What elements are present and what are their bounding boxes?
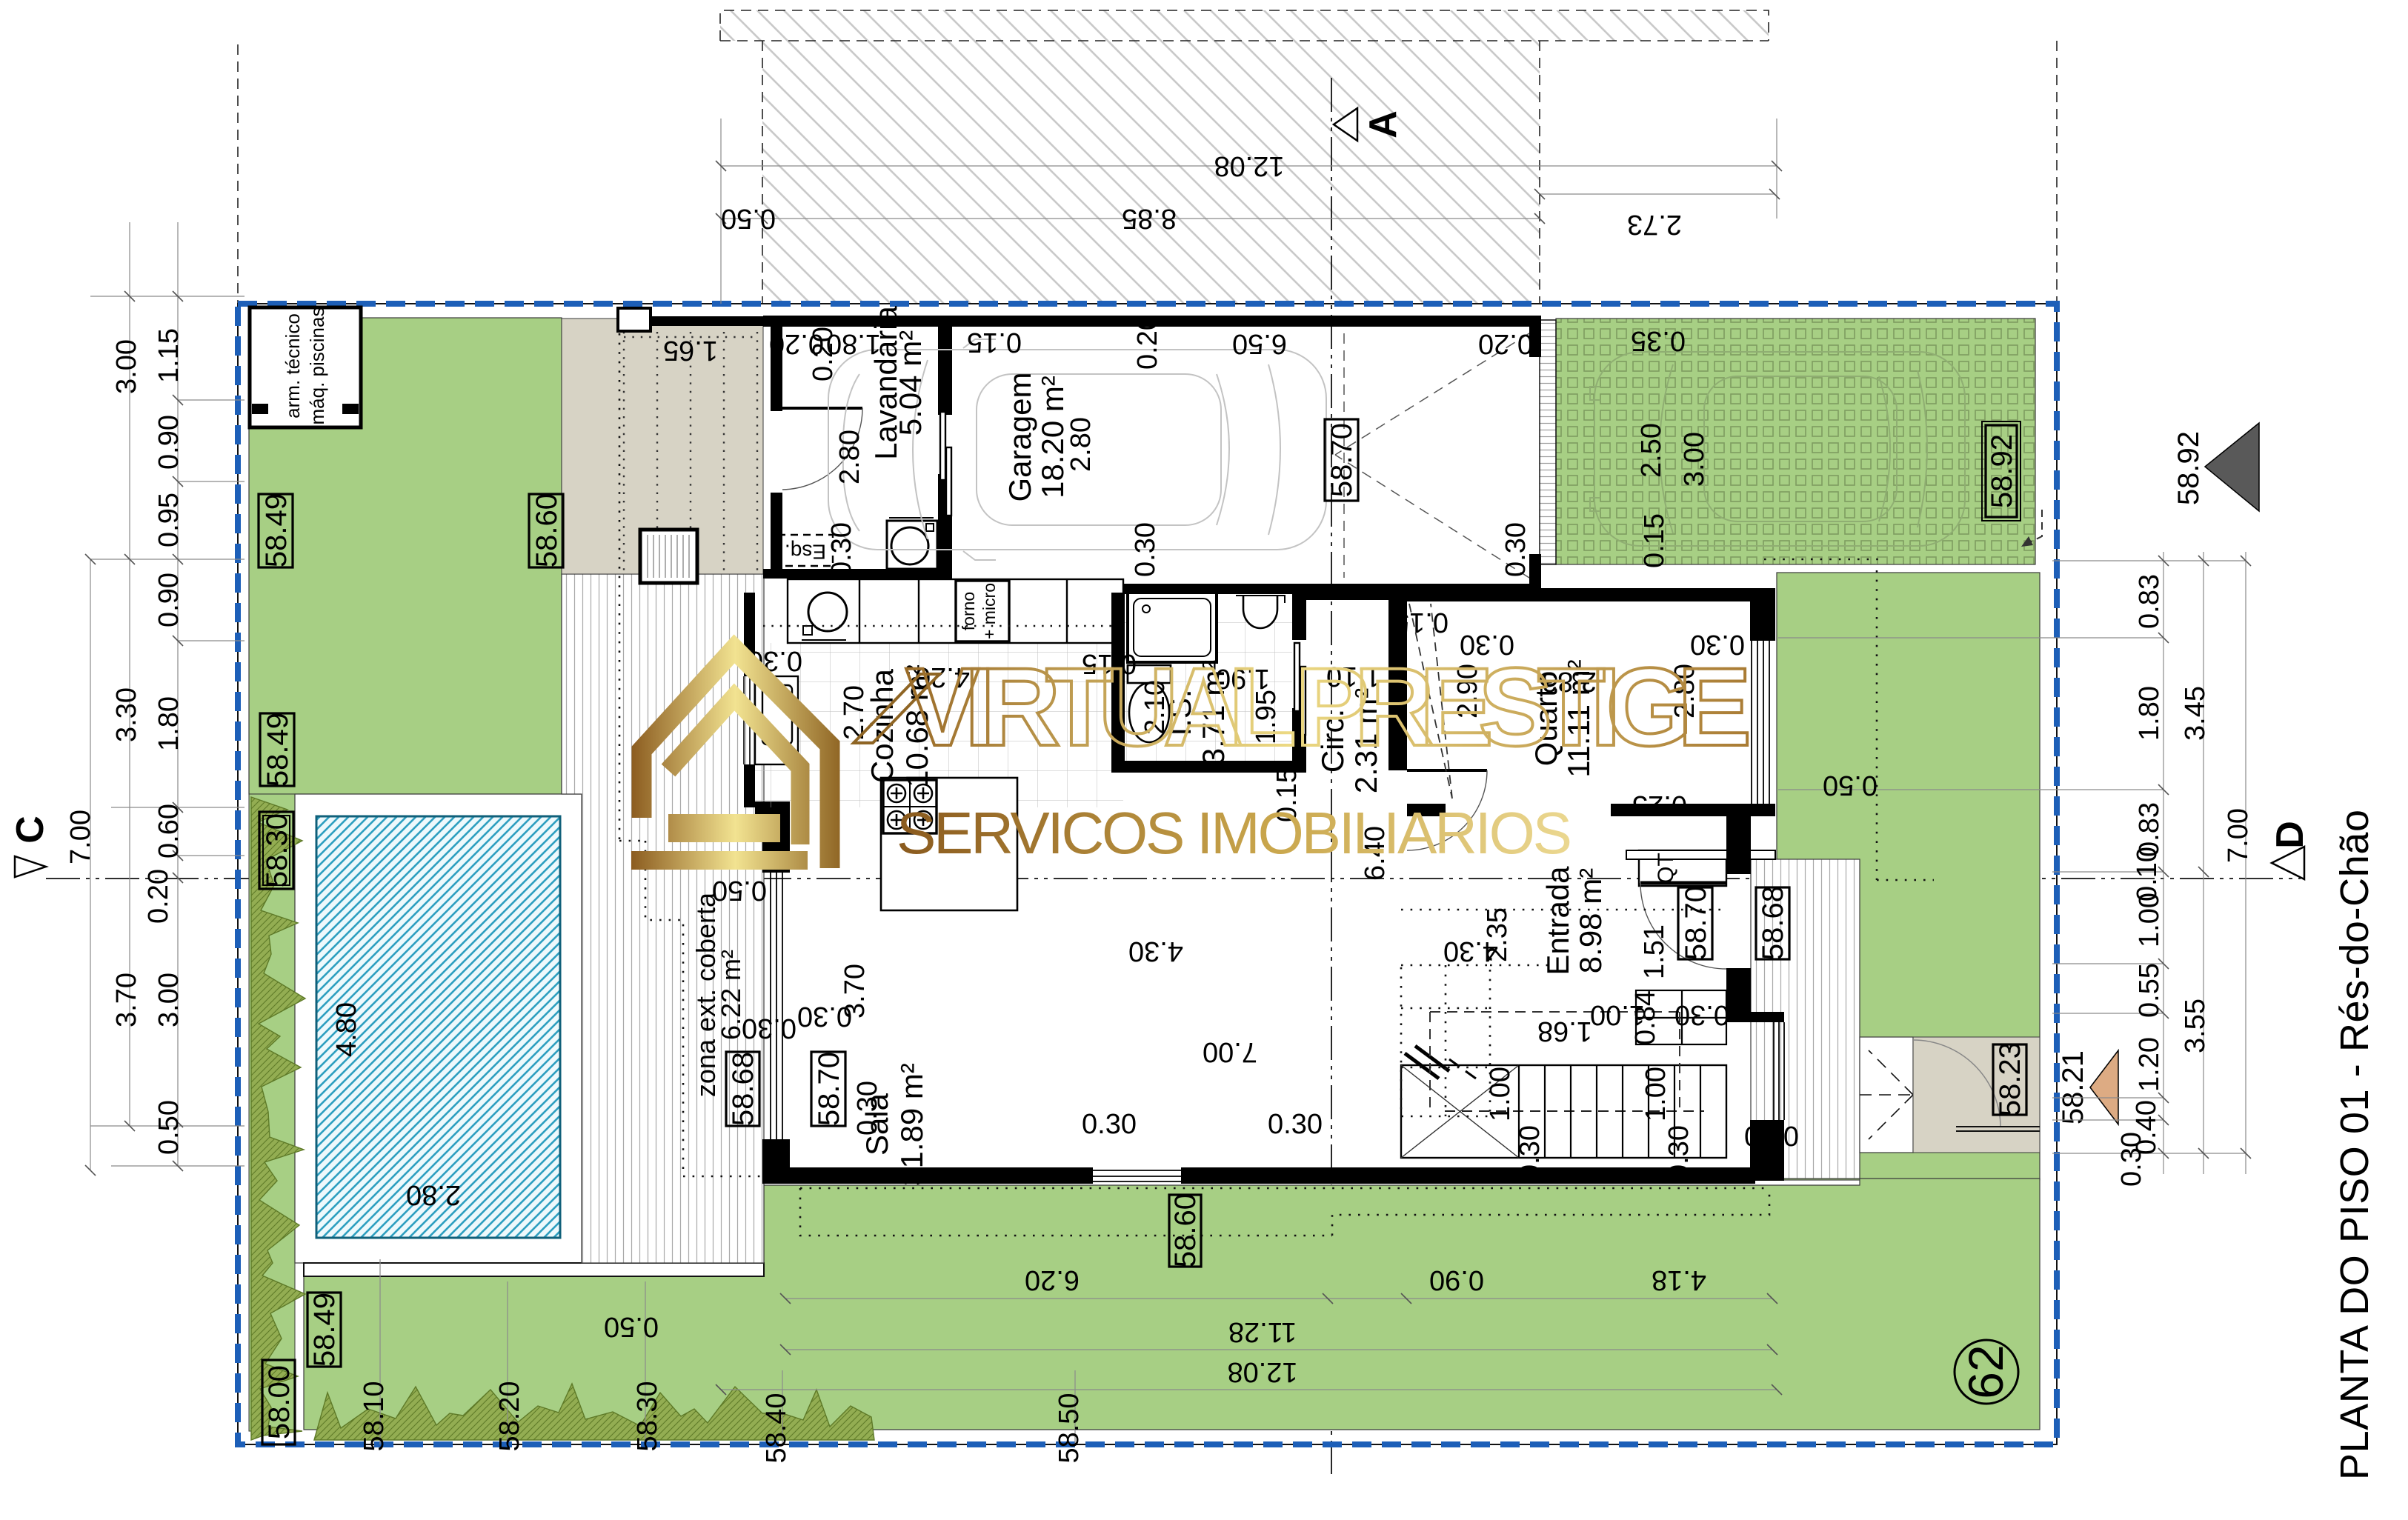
- svg-text:58.49: 58.49: [308, 1293, 341, 1367]
- svg-text:Esq.: Esq.: [785, 541, 826, 564]
- svg-text:1.00: 1.00: [1485, 1067, 1516, 1121]
- svg-text:0.20: 0.20: [808, 327, 839, 381]
- svg-text:0.90: 0.90: [153, 415, 184, 470]
- svg-text:0.20: 0.20: [1478, 328, 1533, 359]
- svg-text:58.68: 58.68: [1757, 886, 1789, 960]
- svg-text:3.45: 3.45: [2180, 686, 2211, 741]
- svg-text:Garagem: Garagem: [1002, 372, 1037, 501]
- svg-text:máq. piscinas: máq. piscinas: [306, 307, 328, 425]
- svg-text:+ micro: + micro: [980, 583, 999, 639]
- svg-text:2.80: 2.80: [834, 430, 865, 484]
- svg-text:3.00: 3.00: [111, 339, 142, 394]
- svg-text:3.55: 3.55: [2180, 999, 2211, 1053]
- svg-text:8.85: 8.85: [1122, 203, 1177, 234]
- svg-text:0.30: 0.30: [2116, 1132, 2147, 1187]
- svg-text:0.30: 0.30: [1514, 1125, 1546, 1180]
- svg-text:6.50: 6.50: [1232, 328, 1287, 359]
- svg-text:0.15: 0.15: [967, 327, 1022, 358]
- svg-text:58.00: 58.00: [263, 1365, 296, 1439]
- svg-text:0.30: 0.30: [1130, 522, 1161, 577]
- svg-text:6.22 m²: 6.22 m²: [716, 950, 746, 1040]
- svg-text:0.30: 0.30: [1268, 1109, 1323, 1140]
- svg-text:3.00: 3.00: [153, 973, 184, 1027]
- svg-text:1.80: 1.80: [2134, 686, 2165, 741]
- svg-text:58.60: 58.60: [1169, 1193, 1202, 1267]
- svg-text:18.20 m²: 18.20 m²: [1035, 376, 1070, 499]
- svg-text:0.25: 0.25: [1632, 790, 1687, 821]
- svg-text:4.18: 4.18: [1652, 1264, 1706, 1296]
- svg-text:1.65: 1.65: [663, 335, 718, 366]
- svg-text:58.30: 58.30: [632, 1381, 663, 1451]
- svg-text:0.20: 0.20: [143, 869, 174, 924]
- svg-text:4.80: 4.80: [331, 1002, 362, 1057]
- svg-text:1.15: 1.15: [153, 328, 184, 383]
- svg-text:0.30: 0.30: [1674, 999, 1729, 1030]
- svg-text:0.50: 0.50: [1823, 770, 1877, 801]
- svg-text:0.40: 0.40: [1744, 1120, 1799, 1151]
- svg-text:0.50: 0.50: [153, 1100, 184, 1155]
- svg-text:7.00: 7.00: [65, 810, 96, 864]
- svg-text:0.95: 0.95: [153, 493, 184, 547]
- svg-text:8.98 m²: 8.98 m²: [1573, 868, 1608, 973]
- svg-text:SERVICOS IMOBILIARIOS: SERVICOS IMOBILIARIOS: [897, 800, 1578, 866]
- svg-text:58.49: 58.49: [260, 493, 293, 567]
- svg-text:1.00: 1.00: [1590, 999, 1645, 1030]
- svg-text:58.92: 58.92: [1986, 434, 2018, 508]
- svg-text:1.51: 1.51: [1639, 924, 1670, 979]
- svg-text:7.00: 7.00: [2223, 808, 2254, 863]
- svg-text:58.60: 58.60: [531, 493, 563, 567]
- svg-text:2.73: 2.73: [1627, 209, 1682, 240]
- svg-text:QT: QT: [1654, 853, 1678, 884]
- svg-text:PLANTA DO PISO 01 - Rés-do-Chã: PLANTA DO PISO 01 - Rés-do-Chão: [2332, 810, 2377, 1480]
- svg-text:12.08: 12.08: [1214, 150, 1284, 181]
- svg-text:58.20: 58.20: [494, 1381, 525, 1451]
- svg-text:1.00: 1.00: [1640, 1067, 1672, 1121]
- svg-text:58.92: 58.92: [2172, 431, 2205, 505]
- svg-text:Entrada: Entrada: [1540, 866, 1575, 976]
- svg-text:1.68: 1.68: [1537, 1016, 1592, 1047]
- svg-text:3.30: 3.30: [111, 687, 142, 742]
- svg-text:31.89 m²: 31.89 m²: [894, 1063, 929, 1186]
- svg-text:0.15: 0.15: [1394, 607, 1449, 638]
- svg-text:0.50: 0.50: [604, 1311, 659, 1342]
- svg-text:0.20: 0.20: [1132, 315, 1163, 370]
- svg-text:4.30: 4.30: [1128, 936, 1183, 967]
- svg-text:1.20: 1.20: [2134, 1037, 2165, 1092]
- svg-text:12.08: 12.08: [1227, 1356, 1297, 1387]
- svg-text:58.21: 58.21: [2057, 1050, 2089, 1124]
- svg-text:0.50: 0.50: [712, 875, 767, 906]
- svg-text:58.10: 58.10: [359, 1381, 390, 1451]
- svg-text:D: D: [2269, 821, 2312, 849]
- svg-text:7.00: 7.00: [1203, 1036, 1257, 1067]
- svg-text:5.04 m²: 5.04 m²: [893, 330, 928, 436]
- svg-text:1.00: 1.00: [2134, 893, 2165, 947]
- svg-text:forno: forno: [959, 592, 978, 630]
- svg-text:A: A: [1362, 110, 1405, 139]
- svg-text:0.90: 0.90: [1429, 1264, 1484, 1296]
- svg-text:0.30: 0.30: [742, 1013, 796, 1044]
- svg-text:58.70: 58.70: [1680, 886, 1712, 960]
- svg-text:3.00: 3.00: [1679, 432, 1710, 487]
- svg-text:2.80: 2.80: [1065, 417, 1097, 472]
- svg-text:0.60: 0.60: [153, 804, 184, 859]
- svg-text:0.30: 0.30: [1082, 1109, 1137, 1140]
- svg-text:VIRTUAL PRESTIGE: VIRTUAL PRESTIGE: [905, 644, 1756, 769]
- svg-text:58.68: 58.68: [727, 1052, 759, 1126]
- svg-text:0.30: 0.30: [1663, 1125, 1694, 1180]
- svg-text:0.90: 0.90: [153, 573, 184, 627]
- svg-text:0.50: 0.50: [721, 203, 776, 234]
- svg-text:58.49: 58.49: [262, 713, 294, 787]
- svg-text:58.30: 58.30: [261, 813, 293, 887]
- svg-text:0.35: 0.35: [1631, 325, 1686, 356]
- svg-text:6.20: 6.20: [1025, 1264, 1080, 1296]
- svg-text:58.70: 58.70: [813, 1052, 845, 1126]
- svg-text:0.30: 0.30: [1500, 522, 1531, 577]
- svg-text:58.70: 58.70: [1326, 423, 1358, 497]
- svg-text:0.30: 0.30: [797, 1001, 852, 1032]
- svg-text:C: C: [9, 816, 52, 844]
- svg-text:4.30: 4.30: [1443, 936, 1498, 967]
- svg-text:0.30: 0.30: [826, 522, 857, 577]
- svg-text:58.23: 58.23: [1994, 1042, 2026, 1116]
- svg-text:2.50: 2.50: [1636, 423, 1667, 478]
- svg-text:0.30: 0.30: [852, 1081, 883, 1136]
- svg-text:58.50: 58.50: [1054, 1393, 1085, 1463]
- svg-text:1.80: 1.80: [153, 696, 184, 751]
- svg-text:11.28: 11.28: [1228, 1316, 1297, 1347]
- svg-text:2.80: 2.80: [406, 1179, 461, 1210]
- svg-text:0.15: 0.15: [1639, 513, 1670, 568]
- svg-text:0.55: 0.55: [2134, 963, 2165, 1018]
- svg-text:0.83: 0.83: [2134, 574, 2165, 629]
- svg-text:62: 62: [1958, 1344, 2013, 1399]
- svg-text:58.40: 58.40: [761, 1393, 792, 1463]
- svg-text:arm. técnico: arm. técnico: [282, 313, 304, 419]
- svg-text:3.70: 3.70: [111, 973, 142, 1027]
